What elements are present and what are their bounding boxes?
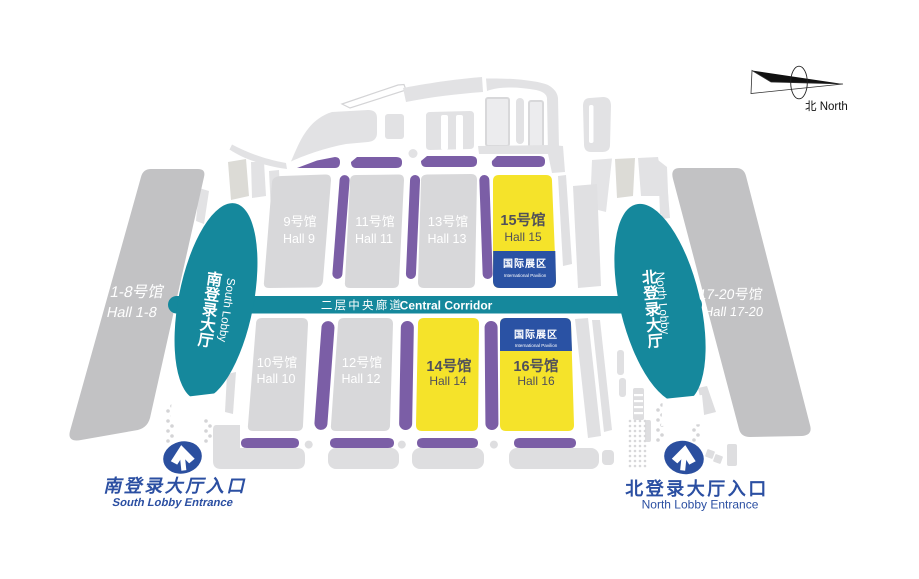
svg-text:北 North: 北 North [805, 100, 848, 113]
svg-text:16号馆: 16号馆 [513, 357, 558, 375]
svg-text:Hall 13: Hall 13 [428, 232, 467, 246]
svg-text:Hall 10: Hall 10 [257, 372, 296, 386]
svg-text:9号馆: 9号馆 [283, 214, 316, 229]
svg-text:1-8号馆: 1-8号馆 [108, 283, 165, 301]
svg-text:Hall 9: Hall 9 [283, 232, 315, 246]
svg-text:Hall 1-8: Hall 1-8 [105, 305, 158, 321]
svg-text:International Pavilion: International Pavilion [504, 273, 547, 278]
svg-text:South Lobby Entrance: South Lobby Entrance [111, 497, 234, 509]
svg-text:11号馆: 11号馆 [355, 214, 395, 229]
svg-text:二层中央廊道: 二层中央廊道 [321, 298, 403, 312]
svg-text:14号馆: 14号馆 [426, 357, 471, 375]
svg-text:南登录大厅入口: 南登录大厅入口 [102, 475, 250, 496]
svg-text:Hall 14: Hall 14 [429, 374, 467, 388]
svg-text:Hall 15: Hall 15 [504, 230, 542, 244]
svg-text:International Pavilion: International Pavilion [515, 343, 558, 348]
svg-text:Hall 16: Hall 16 [517, 374, 555, 388]
svg-text:Hall 12: Hall 12 [342, 372, 381, 386]
svg-text:国际展区: 国际展区 [503, 258, 547, 270]
svg-text:13号馆: 13号馆 [428, 214, 468, 229]
svg-text:厅: 厅 [197, 331, 215, 351]
svg-text:Central Corridor: Central Corridor [400, 299, 493, 313]
svg-text:Hall 11: Hall 11 [355, 232, 393, 246]
svg-text:12号馆: 12号馆 [342, 355, 382, 370]
svg-text:国际展区: 国际展区 [514, 329, 558, 341]
svg-text:北登录大厅入口: 北登录大厅入口 [625, 478, 769, 499]
svg-text:North Lobby Entrance: North Lobby Entrance [642, 498, 759, 512]
svg-text:10号馆: 10号馆 [257, 355, 297, 370]
svg-text:Hall 17-20: Hall 17-20 [703, 304, 764, 319]
svg-text:15号馆: 15号馆 [500, 211, 545, 229]
svg-text:17-20号馆: 17-20号馆 [698, 286, 764, 302]
